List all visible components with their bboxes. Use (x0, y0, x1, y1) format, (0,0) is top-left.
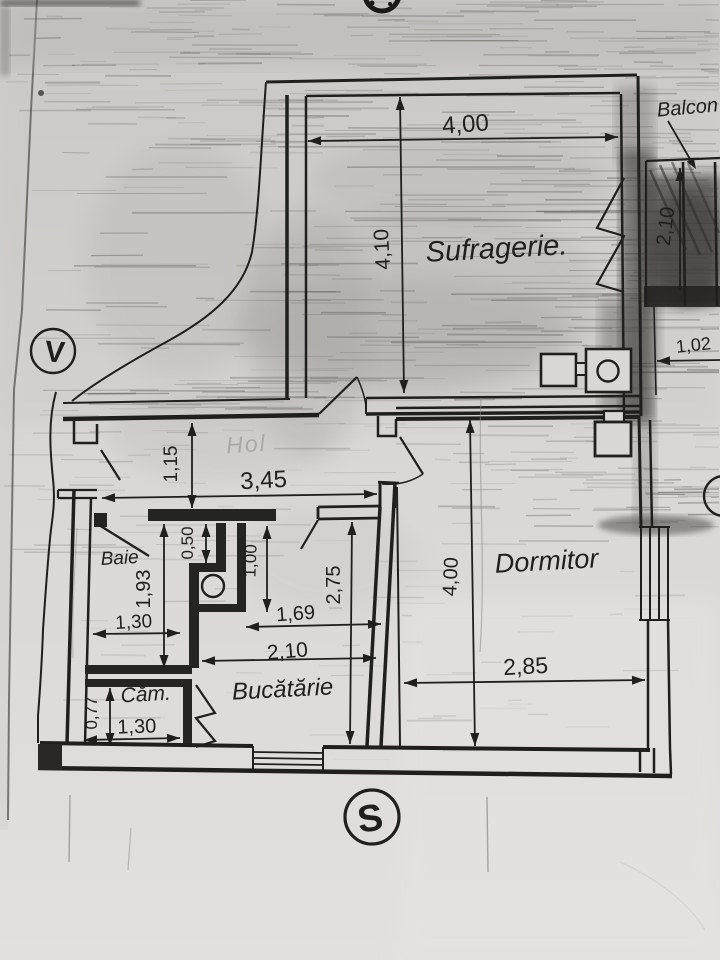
svg-text:0,50: 0,50 (178, 526, 197, 559)
svg-text:0,77: 0,77 (82, 696, 101, 729)
svg-text:4,10: 4,10 (370, 228, 395, 270)
svg-text:2,10: 2,10 (266, 638, 309, 664)
svg-text:2,75: 2,75 (323, 566, 345, 605)
svg-text:4,00: 4,00 (441, 109, 489, 139)
svg-text:2,10: 2,10 (653, 206, 680, 247)
svg-text:3,45: 3,45 (240, 466, 288, 495)
svg-text:4,00: 4,00 (439, 557, 463, 597)
svg-text:1,02: 1,02 (675, 333, 712, 357)
svg-text:V: V (43, 335, 66, 370)
svg-text:1,30: 1,30 (117, 715, 157, 738)
svg-text:Baie: Baie (100, 547, 139, 570)
svg-text:Dormitor: Dormitor (494, 543, 600, 578)
svg-text:1,93: 1,93 (133, 570, 155, 609)
svg-text:1,00: 1,00 (240, 544, 260, 578)
svg-text:Hol: Hol (225, 430, 267, 459)
svg-text:Bucătărie: Bucătărie (231, 673, 334, 705)
svg-text:1,30: 1,30 (115, 611, 153, 634)
svg-text:2,85: 2,85 (503, 652, 549, 680)
svg-text:1,69: 1,69 (275, 602, 315, 627)
svg-text:1,15: 1,15 (161, 446, 182, 483)
